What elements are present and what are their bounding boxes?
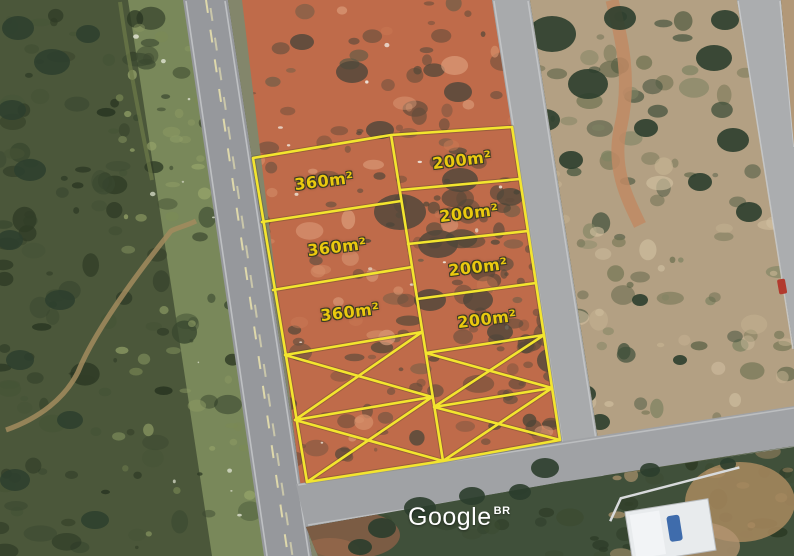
google-watermark: GoogleBR xyxy=(408,503,511,532)
google-region-code: BR xyxy=(494,505,511,517)
satellite-imagery xyxy=(0,0,794,556)
google-logo: Google xyxy=(408,503,492,531)
satellite-map-canvas[interactable]: 360m²360m²360m²200m²200m²200m²200m² Goog… xyxy=(0,0,794,556)
